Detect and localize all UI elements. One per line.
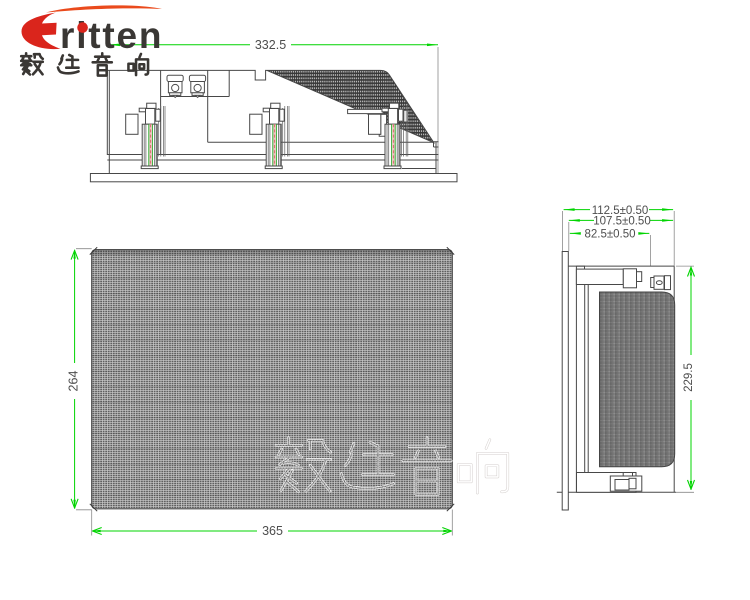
svg-text:332.5: 332.5 [255,38,286,52]
svg-text:107.5±0.50: 107.5±0.50 [593,216,650,228]
svg-text:264: 264 [66,371,80,392]
svg-text:82.5±0.50: 82.5±0.50 [584,229,635,241]
svg-text:229.5: 229.5 [683,363,695,392]
svg-text:ritten: ritten [60,15,163,56]
svg-text:365: 365 [262,524,283,538]
